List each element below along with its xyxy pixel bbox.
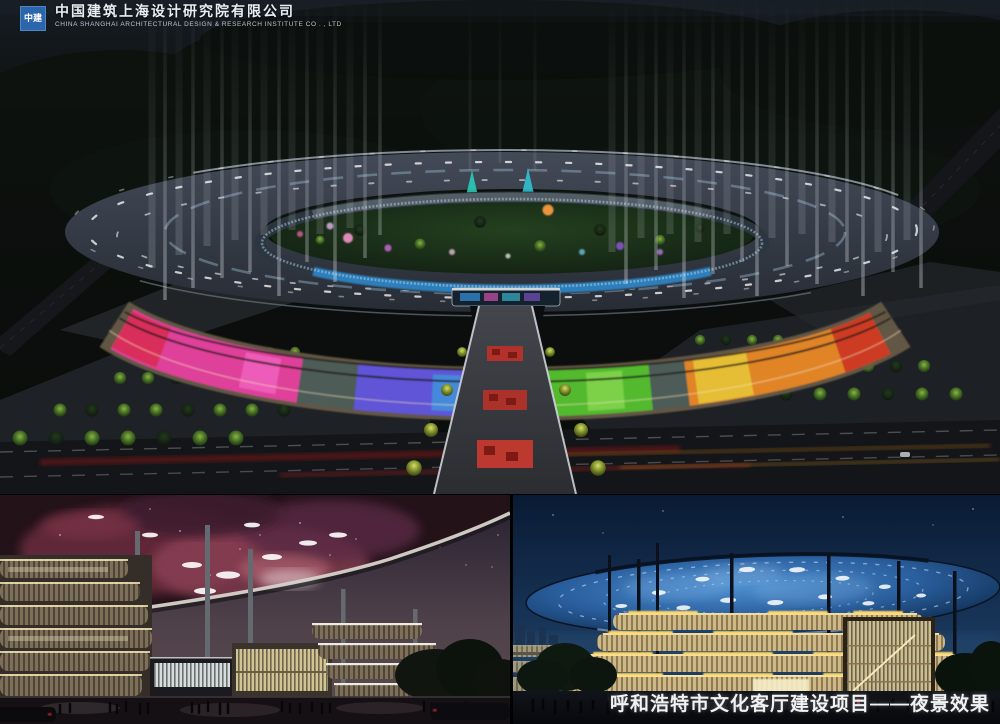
glass-atrium [843, 617, 935, 697]
project-caption: 呼和浩特市文化客厅建设项目——夜景效果 [610, 689, 990, 716]
logo-mark: 中建 [24, 14, 42, 23]
company-name-block: 中国建筑上海设计研究院有限公司 CHINA SHANGHAI ARCHITECT… [55, 4, 342, 29]
company-name-en: CHINA SHANGHAI ARCHITECTURAL DESIGN & RE… [55, 20, 342, 29]
curved-band-building-left [0, 555, 152, 703]
aerial-night-render [0, 0, 1000, 494]
glass-pavilion-center [150, 657, 234, 699]
glass-hall-right [232, 643, 332, 699]
company-name-cn: 中国建筑上海设计研究院有限公司 [55, 4, 342, 19]
presentation-board: 中建 中国建筑上海设计研究院有限公司 CHINA SHANGHAI ARCHIT… [0, 0, 1000, 724]
foreground-plaza [0, 696, 510, 724]
company-logo: 中建 [20, 6, 46, 31]
detail-render-nebula-canopy [0, 495, 510, 724]
company-header: 中建 中国建筑上海设计研究院有限公司 CHINA SHANGHAI ARCHIT… [20, 4, 342, 31]
